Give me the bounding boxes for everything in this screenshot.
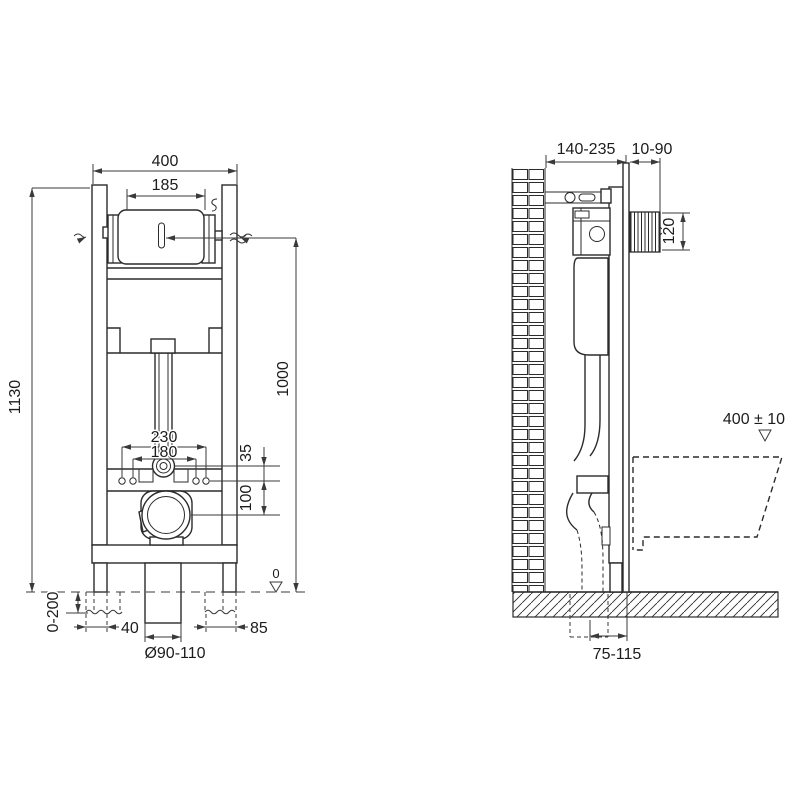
floor-slab	[513, 592, 778, 617]
dim-label-cistern-width: 185	[152, 177, 179, 194]
bracket-clamp	[601, 189, 611, 203]
datum-triangle-icon	[270, 582, 282, 592]
dim-label-left-offset: 40	[121, 620, 139, 637]
wc-support-bracket	[577, 476, 608, 493]
flush-elbow-inner	[160, 463, 167, 470]
dim-label-frame-width: 400	[152, 153, 179, 170]
dim-label-leg-adjustment: 0-200	[45, 591, 62, 632]
hose-squiggle-icon	[212, 199, 217, 211]
float-valve	[590, 227, 605, 242]
dim-label-fixing-inner: 180	[151, 444, 178, 461]
flush-pipe-side	[574, 355, 585, 461]
foot-pad-left-dashed	[86, 592, 120, 612]
foot-pad-right-dashed	[205, 592, 236, 612]
foot-pad-left-wavy	[86, 610, 122, 614]
brick-pattern	[512, 168, 545, 592]
dim-label-wall-finish: 10-90	[632, 141, 673, 158]
bracket-slot	[579, 194, 595, 201]
technical-drawing-canvas: 400 185 1130 1000 230 180	[0, 0, 800, 800]
waste-outlet-inner	[148, 497, 185, 534]
fixing-hole	[203, 478, 209, 484]
fixing-hole	[193, 478, 199, 484]
frame-rail-side	[609, 187, 623, 563]
installation-drawing: 400 185 1130 1000 230 180	[0, 0, 800, 800]
cistern-side	[567, 208, 610, 637]
dim-label-right-offset: 85	[250, 620, 268, 637]
frame-foot-side	[610, 563, 622, 592]
outlet-bend	[567, 493, 577, 530]
cistern-front	[103, 199, 222, 264]
protection-box-hatched	[630, 212, 660, 252]
outlet-bend	[589, 493, 594, 512]
frame-rail-left	[92, 185, 107, 545]
front-view: 400 185 1130 1000 230 180	[7, 153, 308, 662]
water-tank	[574, 258, 608, 355]
dim-label-frame-depth: 140-235	[557, 141, 616, 158]
side-view: 140-235 10-90 120 400 ± 10 75-115	[512, 141, 785, 663]
support-bracket-right	[209, 328, 222, 353]
dim-label-bowl-height: 400 ± 10	[723, 411, 785, 428]
flush-plate-box	[630, 212, 664, 252]
drain-pipe	[145, 563, 181, 623]
dim-label-access-opening: 120	[661, 218, 678, 245]
wc-bowl-outline	[633, 457, 782, 550]
dim-label-elbow-offset: 35	[238, 444, 255, 462]
dim-label-frame-height: 1130	[7, 380, 24, 415]
frame-crossbar-bottom	[92, 545, 237, 563]
datum-zero-label: 0	[272, 566, 279, 581]
wavy-arrow-left-icon	[74, 234, 86, 237]
flush-pipe-side	[590, 355, 600, 456]
support-bracket-left	[107, 328, 120, 353]
frame-foot-left	[94, 563, 107, 592]
dim-label-flush-height: 1000	[275, 361, 292, 397]
frame-foot-right	[223, 563, 236, 592]
bowl-dashed-outline	[633, 457, 782, 550]
valve-detail	[575, 211, 589, 218]
plate-notch-left	[139, 469, 153, 482]
dim-label-outlet-to-wall: 75-115	[593, 646, 642, 663]
floor-slab-hatched	[513, 592, 778, 617]
flush-pipe-cap	[151, 339, 175, 353]
dim-label-outlet-offset: 100	[238, 485, 255, 512]
soil-pipe-hidden	[577, 530, 582, 592]
wall-anchor	[565, 193, 575, 203]
fixing-hole	[130, 478, 136, 484]
level-triangle-icon	[759, 430, 771, 441]
finished-wall-board	[623, 163, 629, 592]
seat-bolt-plate	[602, 527, 610, 545]
plate-notch-right	[174, 469, 188, 482]
flush-button-slot	[159, 223, 165, 248]
foot-pad-right-wavy	[205, 610, 235, 614]
fixing-hole	[119, 478, 125, 484]
masonry-wall	[512, 168, 545, 592]
soil-pipe-hidden	[594, 512, 603, 592]
dim-label-drain-diameter: Ø90-110	[144, 645, 205, 662]
